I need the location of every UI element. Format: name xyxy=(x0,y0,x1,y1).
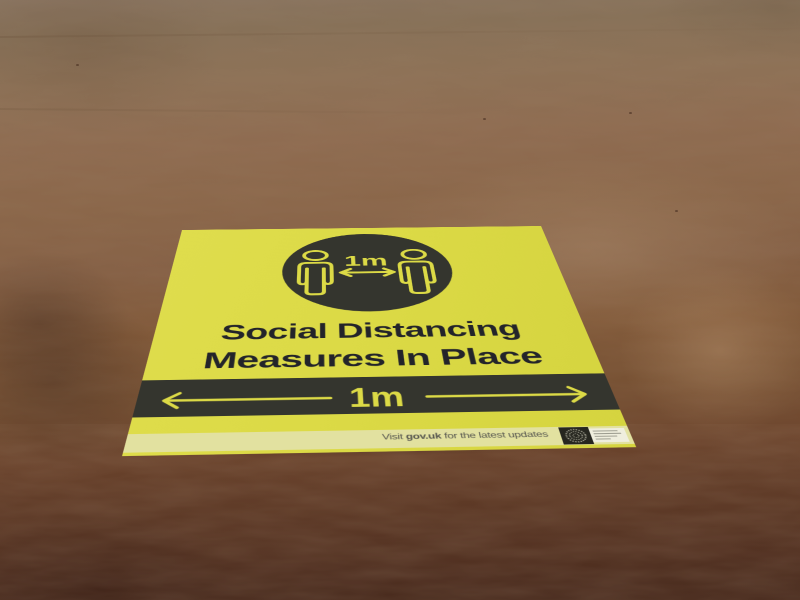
svg-text:1m: 1m xyxy=(344,252,389,269)
svg-text:1m: 1m xyxy=(348,382,405,413)
